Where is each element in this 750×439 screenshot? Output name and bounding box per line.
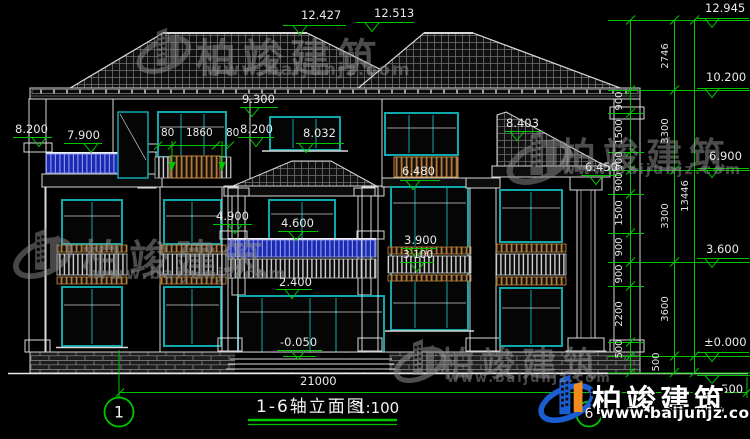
dim-label: 900 bbox=[615, 172, 625, 191]
total-width-dim: 21000 bbox=[300, 376, 337, 388]
level-label: 8.403 bbox=[506, 118, 539, 130]
dim-label: 2200 bbox=[615, 301, 625, 326]
level-label: 6.480 bbox=[402, 166, 435, 178]
level-label: 6.900 bbox=[709, 151, 742, 163]
dim-label: 13446 bbox=[681, 180, 691, 212]
level-label: 8.200 bbox=[15, 124, 48, 136]
dim-label: 1500 bbox=[615, 200, 625, 225]
dim-label: 3300 bbox=[661, 203, 671, 228]
watermark-site-text: www.baijunjz.com bbox=[447, 371, 612, 386]
level-label: 12.427 bbox=[301, 10, 341, 22]
drawing-title: 1-6轴立面图 bbox=[256, 399, 366, 416]
dim-label: 900 bbox=[615, 151, 625, 170]
dim-label: 80 bbox=[161, 128, 174, 139]
pilaster bbox=[470, 187, 496, 352]
dim-label: 3300 bbox=[661, 118, 671, 143]
dim-label: 500 bbox=[652, 352, 662, 371]
level-label: 3.900 bbox=[404, 235, 437, 247]
logo-site-text: www.baijunjz.com bbox=[600, 404, 750, 422]
left-pilaster bbox=[29, 99, 46, 352]
dim-label: 2746 bbox=[661, 43, 671, 68]
dim-label: 900 bbox=[615, 91, 625, 110]
terrace-door bbox=[118, 112, 148, 178]
level-label: 8.200 bbox=[240, 124, 273, 136]
level-label: 8.032 bbox=[303, 128, 336, 140]
dim-label: 1500 bbox=[615, 119, 625, 144]
brown-railing bbox=[170, 156, 220, 178]
porch-hip-roof bbox=[228, 161, 380, 188]
level-label: 10.200 bbox=[706, 72, 746, 84]
level-label: -0.050 bbox=[280, 337, 317, 349]
level-label: 3.600 bbox=[706, 244, 739, 256]
level-label: 4.600 bbox=[281, 218, 314, 230]
watermark-site-text: www.baijunjz.com bbox=[92, 264, 287, 283]
cad-elevation-canvas: 柏竣建筑 www.baijunjz.com 柏竣建筑 www.baijunjz.… bbox=[0, 0, 750, 439]
level-label: ±0.000 bbox=[704, 337, 747, 349]
drawing-scale: 1:100 bbox=[356, 401, 399, 416]
dim-label: 900 bbox=[615, 237, 625, 256]
dim-label: 500 bbox=[615, 339, 625, 358]
window bbox=[385, 113, 458, 155]
balcony-railing bbox=[496, 254, 566, 275]
level-label: 3.100 bbox=[403, 250, 433, 261]
dim-label: 1860 bbox=[186, 128, 213, 139]
dim-label: 900 bbox=[615, 264, 625, 283]
level-label: 9.300 bbox=[242, 94, 275, 106]
level-label: 12.513 bbox=[374, 8, 414, 20]
level-label: 7.900 bbox=[67, 130, 100, 142]
level-label: 4.900 bbox=[216, 211, 249, 223]
building-elevation bbox=[8, 33, 748, 374]
axis-number-1: 1 bbox=[114, 403, 124, 422]
level-label: 12.945 bbox=[705, 3, 745, 15]
watermark-site-text: www.baijunjz.com bbox=[206, 60, 412, 80]
dim-label: 80 bbox=[226, 128, 239, 139]
level-label: 6.450 bbox=[585, 162, 618, 174]
level-label: 2.400 bbox=[279, 277, 312, 289]
dim-label: 3600 bbox=[661, 296, 671, 321]
